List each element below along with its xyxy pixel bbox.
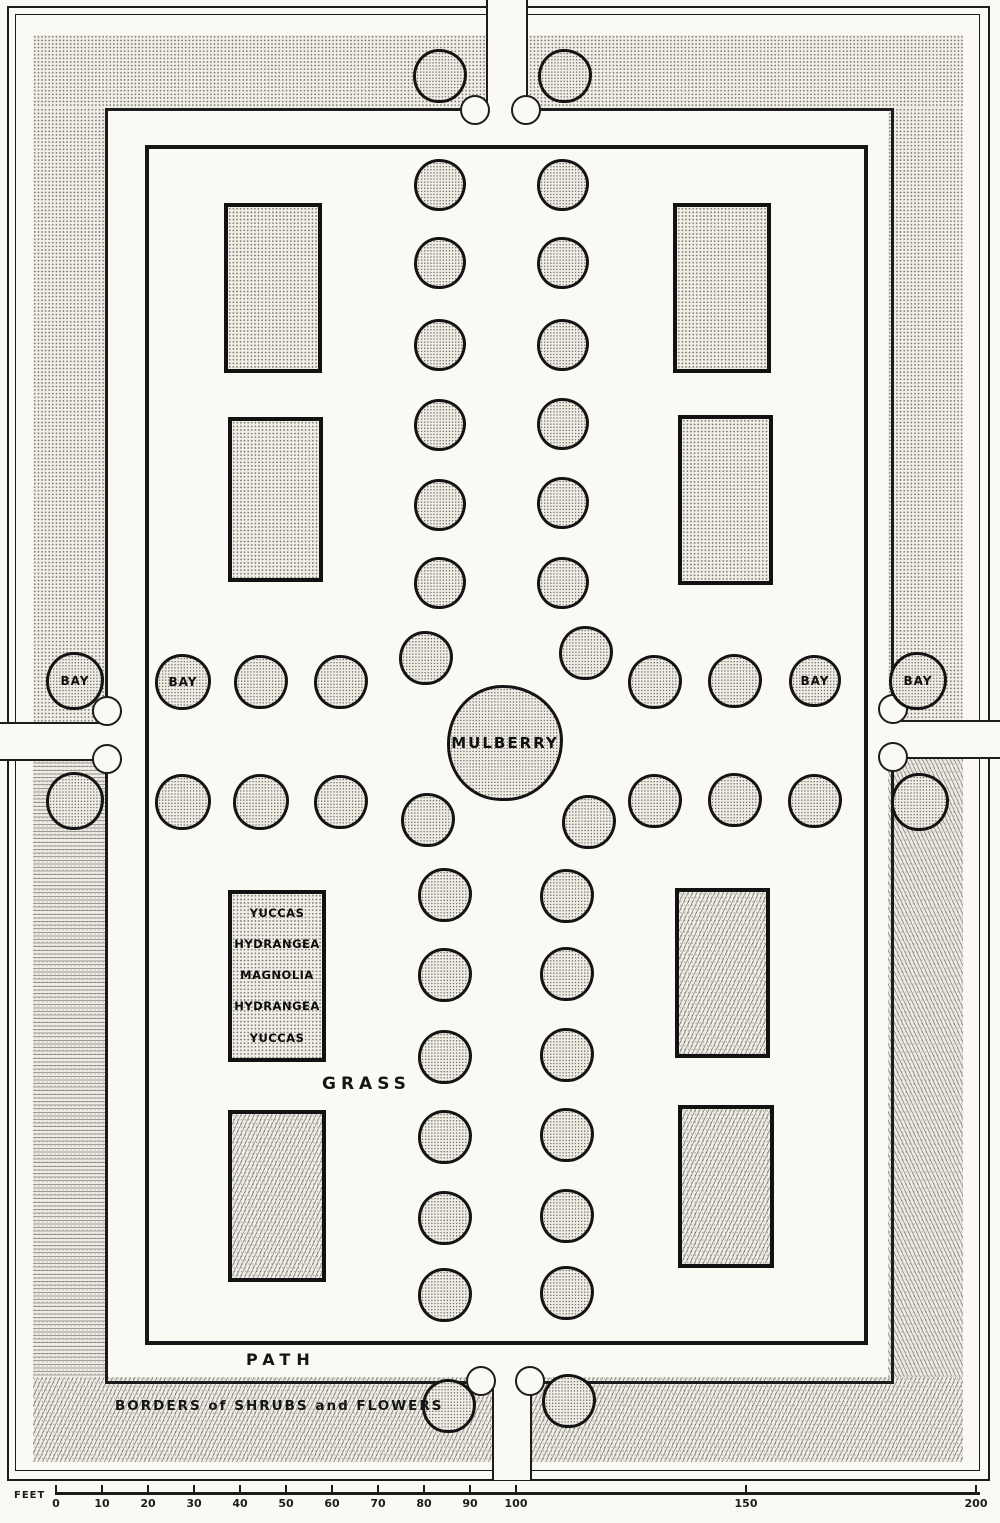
scale-tick-label: 90	[458, 1497, 482, 1510]
tree-circle	[414, 319, 466, 371]
tree-circle	[414, 159, 466, 211]
entrance-notch	[92, 696, 122, 726]
scale-tick	[745, 1485, 747, 1493]
tree-circle	[413, 49, 467, 103]
tree-circle	[708, 773, 762, 827]
tree-circle	[418, 868, 472, 922]
scale-tick	[193, 1485, 195, 1493]
tree-circle	[540, 869, 594, 923]
tree-circle	[628, 655, 682, 709]
border-band-right-lower	[888, 758, 963, 1462]
bay-tree: BAY	[789, 655, 841, 707]
tree-circle	[414, 557, 466, 609]
bed-rect	[228, 417, 323, 582]
tree-label: BAY	[904, 675, 933, 687]
tree-circle	[708, 654, 762, 708]
bed-label: MAGNOLIA	[240, 970, 314, 982]
scale-tick	[147, 1485, 149, 1493]
bay-tree: BAY	[889, 652, 947, 710]
scale-tick	[423, 1485, 425, 1493]
bed-label: HYDRANGEA	[234, 1001, 320, 1013]
tree-circle	[418, 1191, 472, 1245]
tree-circle	[401, 793, 455, 847]
bed-label: HYDRANGEA	[234, 939, 320, 951]
tree-circle	[537, 237, 589, 289]
bed-rect	[228, 1110, 326, 1282]
scale-tick-label: 80	[412, 1497, 436, 1510]
tree-circle	[155, 774, 211, 830]
tree-circle	[542, 1374, 596, 1428]
scale-tick	[377, 1485, 379, 1493]
scale-tick-label: 0	[44, 1497, 68, 1510]
scale-tick	[101, 1485, 103, 1493]
scale-tick-label: 60	[320, 1497, 344, 1510]
scale-tick	[331, 1485, 333, 1493]
bed-rect	[678, 415, 773, 585]
scale-unit-label: FEET	[14, 1490, 45, 1501]
entrance-notch	[878, 742, 908, 772]
tree-circle	[418, 1110, 472, 1164]
scale-tick	[285, 1485, 287, 1493]
tree-circle	[538, 49, 592, 103]
tree-circle	[540, 1028, 594, 1082]
tree-circle	[414, 237, 466, 289]
scale-tick-label: 70	[366, 1497, 390, 1510]
tree-label: BAY	[801, 675, 830, 687]
tree-circle	[537, 557, 589, 609]
scale-tick-label: 30	[182, 1497, 206, 1510]
tree-circle	[628, 774, 682, 828]
tree-circle	[418, 948, 472, 1002]
bay-tree: BAY	[155, 654, 211, 710]
tree-circle	[537, 319, 589, 371]
borders-label: BORDERS of SHRUBS and FLOWERS	[115, 1398, 443, 1414]
tree-circle	[46, 772, 104, 830]
bed-label: YUCCAS	[250, 908, 305, 920]
tree-circle	[537, 398, 589, 450]
tree-circle	[891, 773, 949, 831]
tree-circle	[562, 795, 616, 849]
bed-rect	[673, 203, 771, 373]
grass-label: GRASS	[322, 1074, 411, 1094]
scale-tick	[515, 1485, 517, 1493]
tree-circle	[540, 1266, 594, 1320]
tree-circle	[788, 774, 842, 828]
bed-rect	[224, 203, 322, 373]
bed-rect	[675, 888, 770, 1058]
tree-circle	[414, 479, 466, 531]
tree-circle	[234, 655, 288, 709]
tree-label: BAY	[169, 676, 198, 688]
tree-label: MULBERRY	[451, 736, 559, 751]
scale-tick	[239, 1485, 241, 1493]
tree-circle	[418, 1030, 472, 1084]
entrance-notch	[515, 1366, 545, 1396]
bed-label: YUCCAS	[250, 1033, 305, 1045]
tree-label: BAY	[61, 675, 90, 687]
tree-circle	[559, 626, 613, 680]
labeled-bed: YUCCASHYDRANGEAMAGNOLIAHYDRANGEAYUCCAS	[228, 890, 326, 1062]
scale-tick-label: 50	[274, 1497, 298, 1510]
tree-circle	[540, 1189, 594, 1243]
scale-tick-label: 20	[136, 1497, 160, 1510]
garden-plan-figure: YUCCASHYDRANGEAMAGNOLIAHYDRANGEAYUCCAS B…	[0, 0, 1000, 1523]
scale-tick	[975, 1485, 977, 1493]
tree-circle	[314, 775, 368, 829]
tree-circle	[399, 631, 453, 685]
scale-tick	[55, 1485, 57, 1493]
tree-circle	[233, 774, 289, 830]
scale-tick-label: 150	[734, 1497, 758, 1510]
entrance-notch	[460, 95, 490, 125]
tree-circle	[414, 399, 466, 451]
entrance-notch	[511, 95, 541, 125]
entrance-notch	[92, 744, 122, 774]
tree-circle	[537, 159, 589, 211]
scale-tick-label: 200	[964, 1497, 988, 1510]
scale-bar: FEET 0102030405060708090100150200	[0, 1482, 1000, 1522]
tree-circle	[537, 477, 589, 529]
border-band-left-lower	[33, 760, 105, 1462]
scale-tick	[469, 1485, 471, 1493]
bay-tree: BAY	[46, 652, 104, 710]
mulberry-tree: MULBERRY	[447, 685, 563, 801]
tree-circle	[540, 947, 594, 1001]
scale-tick-label: 10	[90, 1497, 114, 1510]
scale-tick-label: 40	[228, 1497, 252, 1510]
tree-circle	[314, 655, 368, 709]
tree-circle	[418, 1268, 472, 1322]
bed-rect	[678, 1105, 774, 1268]
scale-tick-label: 100	[504, 1497, 528, 1510]
tree-circle	[540, 1108, 594, 1162]
path-label: PATH	[246, 1350, 316, 1369]
